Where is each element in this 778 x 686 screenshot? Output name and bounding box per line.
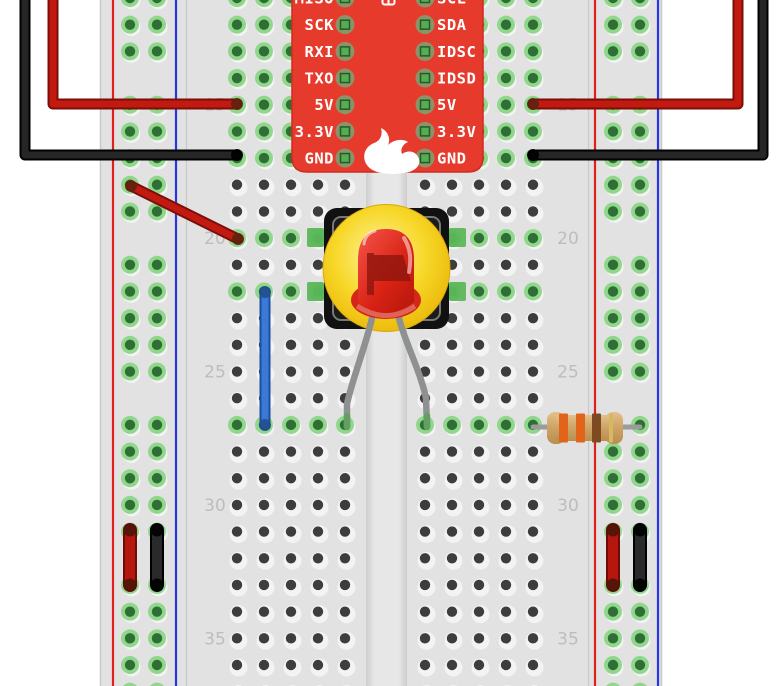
breadboard-hole[interactable] [284, 205, 302, 223]
breadboard-hole[interactable] [445, 632, 463, 650]
breadboard-hole[interactable] [230, 365, 248, 383]
breadboard-hole[interactable] [311, 472, 329, 490]
breadboard-hole[interactable] [445, 578, 463, 596]
wire-end-cap [124, 579, 137, 592]
breadboard-hole[interactable] [284, 445, 302, 463]
row-number-label: 25 [557, 363, 579, 383]
row-number-label: 35 [557, 629, 579, 649]
rail-jumper-black-left[interactable] [151, 524, 164, 592]
row-number-label: 20 [557, 229, 579, 249]
breadboard-hole[interactable] [257, 258, 275, 276]
resistor-band-orange [576, 414, 585, 443]
pin-label: SCK [305, 16, 335, 34]
breadboard-hole[interactable] [284, 392, 302, 410]
wire-end-cap [232, 233, 244, 245]
breadboard-hole[interactable] [499, 365, 517, 383]
breadboard-hole[interactable] [284, 525, 302, 543]
breadboard-hole[interactable] [472, 338, 490, 356]
breadboard-hole[interactable] [418, 178, 436, 196]
breadboard-hole[interactable] [230, 472, 248, 490]
breadboard-hole[interactable] [311, 498, 329, 516]
breadboard-circuit-diagram: 15152020252530303535 MISOSCLSCKSDARXIIDS… [0, 0, 778, 686]
breadboard-hole[interactable] [257, 205, 275, 223]
wire-end-cap [634, 524, 647, 537]
breadboard-hole[interactable] [338, 659, 356, 677]
pin-label: 5V [437, 96, 457, 114]
breadboard-hole[interactable] [499, 578, 517, 596]
rail-jumper-black-right[interactable] [634, 524, 647, 592]
breadboard-hole[interactable] [257, 552, 275, 570]
breadboard-hole[interactable] [445, 178, 463, 196]
breadboard-hole[interactable] [499, 178, 517, 196]
breadboard-hole[interactable] [472, 312, 490, 330]
breadboard-hole[interactable] [257, 498, 275, 516]
wire-end-cap [527, 149, 539, 161]
pin-pad[interactable] [336, 149, 355, 168]
breadboard-hole[interactable] [499, 605, 517, 623]
pin-pad[interactable] [416, 15, 435, 34]
breadboard-hole[interactable] [418, 338, 436, 356]
breadboard-hole[interactable] [418, 659, 436, 677]
pin-label: SDA [437, 16, 467, 34]
resistor-band-brown [592, 414, 601, 443]
pin-label: 5V [314, 96, 334, 114]
breadboard-hole[interactable] [284, 605, 302, 623]
breadboard-hole[interactable] [418, 525, 436, 543]
breadboard-hole[interactable] [526, 445, 544, 463]
breadboard-hole[interactable] [257, 525, 275, 543]
breadboard-hole[interactable] [526, 552, 544, 570]
breadboard-hole[interactable] [499, 445, 517, 463]
breadboard-hole[interactable] [526, 498, 544, 516]
breadboard-hole[interactable] [418, 605, 436, 623]
breadboard-hole[interactable] [338, 605, 356, 623]
row-number-label: 35 [204, 629, 226, 649]
breadboard-hole[interactable] [445, 472, 463, 490]
breadboard-hole[interactable] [257, 659, 275, 677]
breadboard-hole[interactable] [311, 552, 329, 570]
pin-pad[interactable] [336, 122, 355, 141]
breadboard-hole[interactable] [284, 312, 302, 330]
breadboard-hole[interactable] [284, 258, 302, 276]
breadboard-hole[interactable] [499, 392, 517, 410]
wire-end-cap [259, 419, 271, 431]
wire-end-cap [151, 524, 164, 537]
breadboard-hole[interactable] [230, 578, 248, 596]
breadboard-hole[interactable] [257, 472, 275, 490]
breadboard-hole[interactable] [284, 178, 302, 196]
pin-label: SCL [437, 0, 467, 8]
pin-pad[interactable] [336, 69, 355, 88]
breadboard-hole[interactable] [230, 205, 248, 223]
breadboard-hole[interactable] [311, 659, 329, 677]
pushbutton-leg [449, 228, 466, 247]
breadboard-hole[interactable] [526, 632, 544, 650]
wire-end-cap [607, 524, 620, 537]
breadboard-hole[interactable] [499, 312, 517, 330]
breadboard-hole[interactable] [230, 258, 248, 276]
breadboard-hole[interactable] [338, 338, 356, 356]
led-die-post [367, 253, 374, 295]
resistor-band-orange [559, 414, 568, 443]
breadboard-hole[interactable] [338, 632, 356, 650]
breadboard-hole[interactable] [230, 552, 248, 570]
breadboard-hole[interactable] [311, 365, 329, 383]
breadboard-hole[interactable] [499, 472, 517, 490]
breadboard-hole[interactable] [526, 578, 544, 596]
breadboard-hole[interactable] [230, 312, 248, 330]
breadboard-hole[interactable] [311, 578, 329, 596]
breadboard-hole[interactable] [472, 472, 490, 490]
breadboard-hole[interactable] [311, 605, 329, 623]
pushbutton-leg [307, 282, 324, 301]
pin-label: RXI [305, 43, 335, 61]
breadboard-hole[interactable] [472, 605, 490, 623]
breadboard-hole[interactable] [499, 552, 517, 570]
breadboard-hole[interactable] [499, 258, 517, 276]
pushbutton-leg [449, 282, 466, 301]
breadboard-hole[interactable] [230, 659, 248, 677]
breadboard-hole[interactable] [499, 525, 517, 543]
breadboard-hole[interactable] [230, 498, 248, 516]
breadboard-hole[interactable] [418, 445, 436, 463]
breadboard-hole[interactable] [445, 525, 463, 543]
pin-pad[interactable] [416, 42, 435, 61]
row-number-label: 30 [557, 496, 579, 516]
breadboard-hole[interactable] [311, 445, 329, 463]
breadboard-hole[interactable] [284, 632, 302, 650]
pin-pad[interactable] [336, 95, 355, 114]
breadboard-hole[interactable] [418, 498, 436, 516]
breadboard-hole[interactable] [526, 365, 544, 383]
breadboard-hole[interactable] [499, 205, 517, 223]
pin-pad[interactable] [416, 69, 435, 88]
breadboard-hole[interactable] [445, 552, 463, 570]
breadboard-hole[interactable] [257, 632, 275, 650]
pin-label: IDSD [437, 70, 476, 88]
breadboard-hole[interactable] [284, 552, 302, 570]
breadboard-hole[interactable] [284, 365, 302, 383]
breadboard-hole[interactable] [338, 578, 356, 596]
wire-end-cap [151, 579, 164, 592]
breadboard-hole[interactable] [230, 605, 248, 623]
breadboard-hole[interactable] [257, 578, 275, 596]
breadboard-hole[interactable] [526, 312, 544, 330]
wire-end-cap [527, 98, 539, 110]
breadboard-hole[interactable] [499, 498, 517, 516]
breadboard-hole[interactable] [445, 338, 463, 356]
breadboard-hole[interactable] [311, 178, 329, 196]
wire-end-cap [231, 98, 243, 110]
breadboard-hole[interactable] [338, 525, 356, 543]
breadboard-hole[interactable] [257, 178, 275, 196]
pin-label: 3.3V [437, 123, 476, 141]
row-number-label: 25 [204, 363, 226, 383]
breadboard-hole[interactable] [499, 632, 517, 650]
wire-end-cap [259, 286, 271, 298]
wire-end-cap [231, 149, 243, 161]
breadboard-hole[interactable] [230, 178, 248, 196]
breadboard-hole[interactable] [284, 338, 302, 356]
breadboard-hole[interactable] [526, 258, 544, 276]
pin-pad[interactable] [416, 95, 435, 114]
breadboard-hole[interactable] [472, 632, 490, 650]
breadboard-hole[interactable] [526, 392, 544, 410]
pin-label: GND [437, 150, 467, 168]
pin-label: MISO [295, 0, 334, 8]
breadboard-hole[interactable] [338, 472, 356, 490]
breadboard-hole[interactable] [472, 525, 490, 543]
breadboard-hole[interactable] [338, 445, 356, 463]
breadboard-hole[interactable] [526, 205, 544, 223]
breadboard-hole[interactable] [472, 205, 490, 223]
breadboard-hole[interactable] [445, 445, 463, 463]
breadboard-hole[interactable] [418, 578, 436, 596]
row-number-label: 30 [204, 496, 226, 516]
rail-jumper-red-right[interactable] [607, 524, 620, 592]
pin-pad[interactable] [416, 122, 435, 141]
breadboard-hole[interactable] [526, 525, 544, 543]
breadboard-hole[interactable] [472, 445, 490, 463]
breadboard-hole[interactable] [284, 498, 302, 516]
breadboard-hole[interactable] [526, 472, 544, 490]
breadboard-hole[interactable] [230, 338, 248, 356]
breadboard-hole[interactable] [445, 365, 463, 383]
breadboard-hole[interactable] [445, 659, 463, 677]
breadboard-hole[interactable] [338, 498, 356, 516]
breadboard-hole[interactable] [418, 472, 436, 490]
breadboard-hole[interactable] [472, 365, 490, 383]
breadboard-hole[interactable] [526, 338, 544, 356]
breadboard-hole[interactable] [311, 338, 329, 356]
breadboard-hole[interactable] [499, 659, 517, 677]
breadboard-hole[interactable] [230, 525, 248, 543]
pin-pad[interactable] [336, 15, 355, 34]
breadboard-hole[interactable] [472, 178, 490, 196]
breadboard-hole[interactable] [311, 632, 329, 650]
pin-label: 3.3V [295, 123, 334, 141]
breadboard-hole[interactable] [418, 632, 436, 650]
breadboard-hole[interactable] [230, 445, 248, 463]
breadboard-hole[interactable] [445, 498, 463, 516]
pin-label: GND [305, 150, 335, 168]
pin-label: IDSC [437, 43, 476, 61]
breadboard-hole[interactable] [338, 178, 356, 196]
pin-pad[interactable] [336, 42, 355, 61]
wire-end-cap [607, 579, 620, 592]
breadboard-hole[interactable] [526, 659, 544, 677]
breadboard-hole[interactable] [257, 605, 275, 623]
breadboard-hole[interactable] [284, 578, 302, 596]
breadboard-hole[interactable] [230, 632, 248, 650]
breadboard-hole[interactable] [445, 605, 463, 623]
pin-label: TXO [305, 70, 335, 88]
breadboard-hole[interactable] [445, 392, 463, 410]
breadboard-hole[interactable] [472, 392, 490, 410]
rail-jumper-red-left[interactable] [124, 524, 137, 592]
breadboard-hole[interactable] [257, 445, 275, 463]
breadboard-hole[interactable] [526, 178, 544, 196]
breadboard-hole[interactable] [472, 258, 490, 276]
breadboard-hole[interactable] [338, 552, 356, 570]
breadboard-hole[interactable] [230, 392, 248, 410]
fritzing-diagram-canvas: 15152020252530303535 MISOSCLSCKSDARXIIDS… [0, 0, 778, 686]
jumper-wire-blue[interactable] [259, 286, 271, 431]
wire-end-cap [124, 524, 137, 537]
breadboard-hole[interactable] [472, 578, 490, 596]
breadboard-hole[interactable] [311, 525, 329, 543]
breadboard-hole[interactable] [526, 605, 544, 623]
breadboard-hole[interactable] [472, 659, 490, 677]
breadboard-hole[interactable] [472, 498, 490, 516]
wire-end-cap [634, 579, 647, 592]
breadboard-hole[interactable] [311, 392, 329, 410]
breadboard-hole[interactable] [284, 472, 302, 490]
wire-end-cap [125, 180, 137, 192]
resistor-band-gold [609, 414, 613, 443]
breadboard-hole[interactable] [472, 552, 490, 570]
pushbutton-leg [307, 228, 324, 247]
breadboard-hole[interactable] [499, 338, 517, 356]
breadboard-hole[interactable] [418, 552, 436, 570]
breadboard-hole[interactable] [284, 659, 302, 677]
